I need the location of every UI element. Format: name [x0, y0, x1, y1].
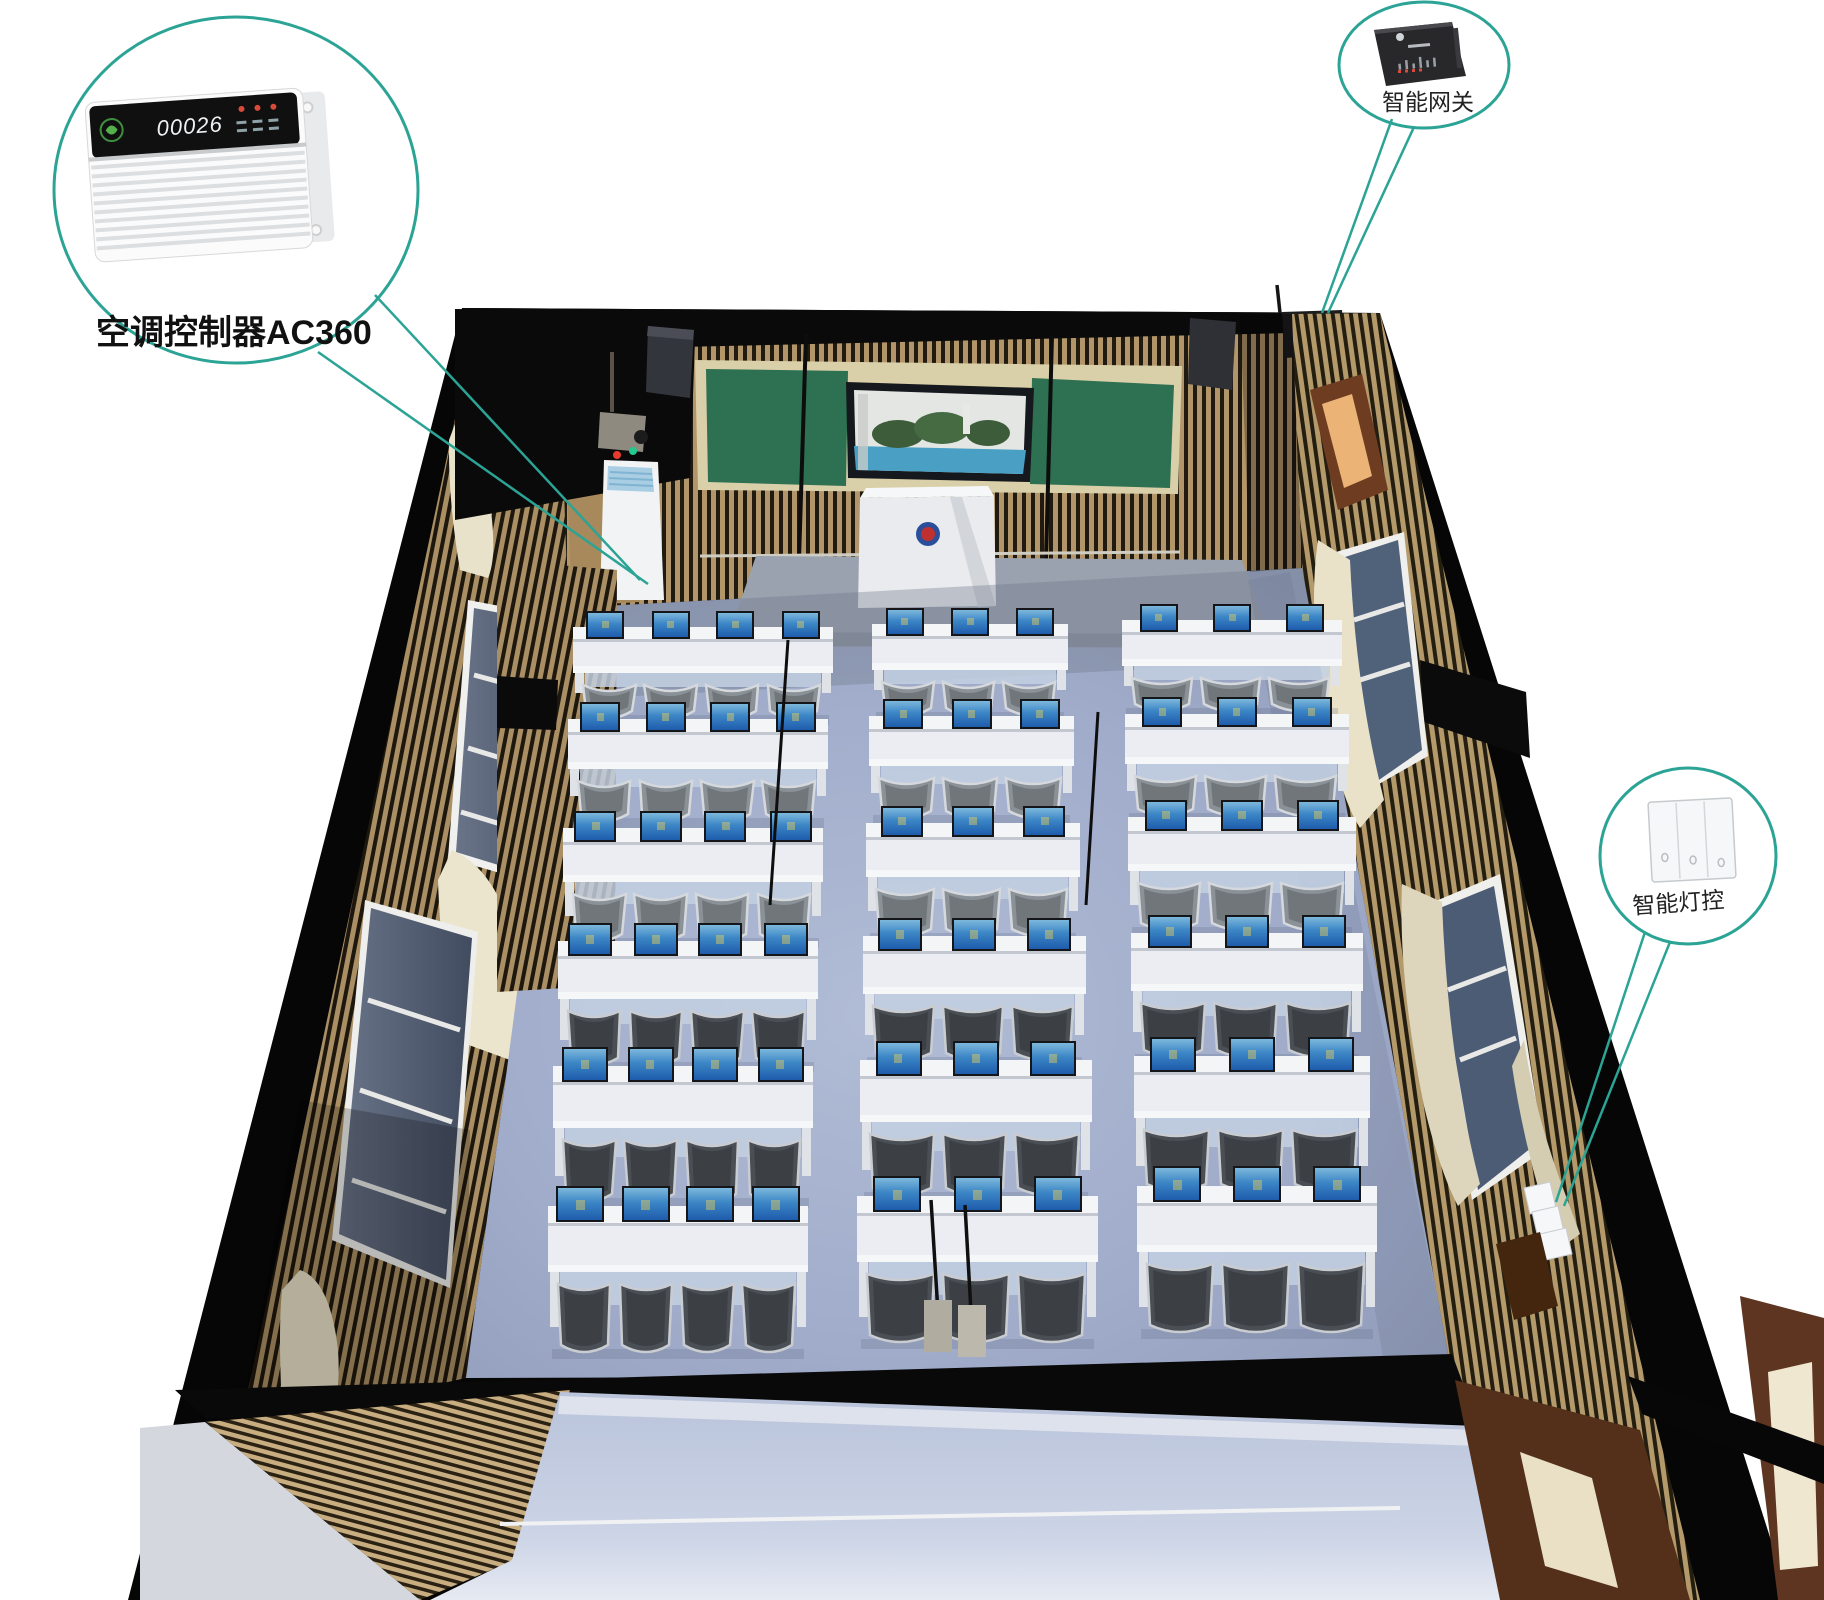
- svg-text:空调控制器AC360: 空调控制器AC360: [96, 314, 372, 352]
- svg-text:智能网关: 智能网关: [1382, 89, 1474, 115]
- svg-text:00026: 00026: [156, 111, 224, 141]
